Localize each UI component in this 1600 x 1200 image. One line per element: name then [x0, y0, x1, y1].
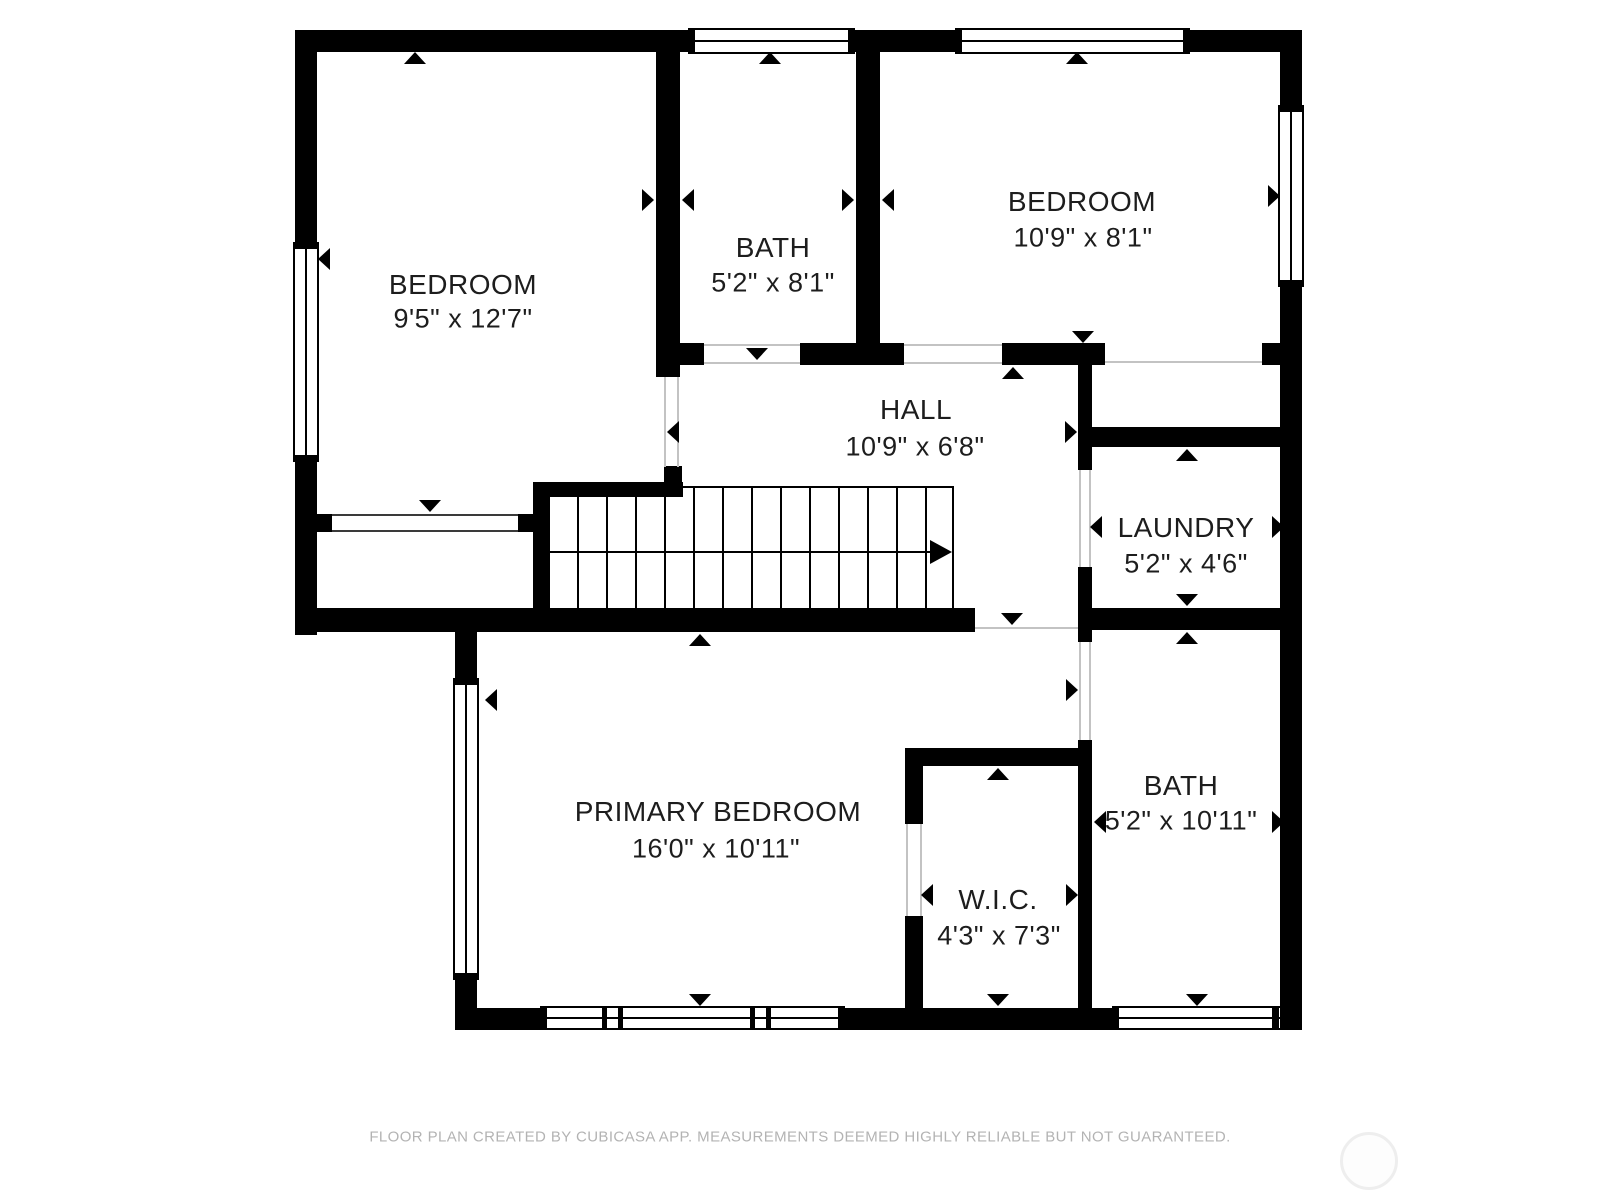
laundry-door-opening: [1079, 470, 1081, 567]
room-dims-bath2: 5'2" x 10'11": [1105, 806, 1258, 837]
window-post: [618, 1006, 623, 1030]
wall-bath-bottom-right: [800, 343, 904, 365]
bedroom2-door-opening: [904, 362, 1002, 364]
wall-laundry-top: [1090, 427, 1302, 447]
wall-laundry-left-upper: [1078, 343, 1092, 470]
room-dims-primary-bedroom: 16'0" x 10'11": [632, 834, 800, 865]
door-marker-icon: [419, 500, 441, 512]
door-marker-icon: [987, 994, 1009, 1006]
wall-wic-bath: [1078, 740, 1092, 1030]
room-label-bedroom2: BEDROOM: [1008, 186, 1156, 218]
primary-door-opening: [975, 627, 1078, 629]
wall-bath-bedroom2: [856, 30, 880, 365]
window-post: [293, 455, 319, 462]
wall-bedroom1-bath: [656, 30, 680, 377]
door-marker-icon: [1066, 884, 1078, 906]
wall-opening-stub-right: [518, 514, 534, 532]
door-marker-icon: [746, 348, 768, 360]
bedroom1-opening-line: [332, 530, 518, 532]
bath2-door-opening: [1089, 642, 1091, 740]
room-dims-bedroom1: 9'5" x 12'7": [393, 304, 532, 335]
wall-opening-stub-left: [317, 514, 332, 532]
window-glass-line: [688, 40, 855, 42]
window-glass-line: [540, 1017, 845, 1019]
door-marker-icon: [1066, 679, 1078, 701]
door-marker-icon: [1066, 52, 1088, 64]
bedroom2-door-opening: [904, 344, 1002, 346]
door-marker-icon: [1090, 516, 1102, 538]
window-post: [688, 28, 695, 54]
window-post: [838, 1006, 845, 1030]
room-label-laundry: LAUNDRY: [1118, 512, 1255, 544]
door-marker-icon: [485, 689, 497, 711]
window-post: [602, 1006, 607, 1030]
floor-plan: BEDROOM 9'5" x 12'7" BATH 5'2" x 8'1" BE…: [0, 0, 1600, 1200]
window: [540, 1006, 845, 1030]
door-marker-icon: [1001, 613, 1023, 625]
bath2-door-opening: [1079, 642, 1081, 740]
window-post: [848, 28, 855, 54]
window-glass-line: [1290, 105, 1292, 287]
door-marker-icon: [1186, 994, 1208, 1006]
window: [453, 678, 479, 980]
door-marker-icon: [842, 189, 854, 211]
room-dims-laundry: 5'2" x 4'6": [1124, 549, 1248, 580]
door-marker-icon: [667, 421, 679, 443]
door-marker-icon: [1002, 367, 1024, 379]
stairs-direction-arrow-icon: [930, 540, 952, 564]
door-marker-icon: [1065, 421, 1077, 443]
staircase: [548, 486, 954, 608]
footer-disclaimer: FLOOR PLAN CREATED BY CUBICASA APP. MEAS…: [369, 1129, 1230, 1146]
door-marker-icon: [1176, 632, 1198, 644]
room-dims-hall: 10'9" x 6'8": [845, 432, 984, 463]
wall-wic-left-lower: [905, 916, 923, 1030]
window-post: [1278, 105, 1304, 112]
door-marker-icon: [1272, 811, 1284, 833]
door-marker-icon: [759, 52, 781, 64]
window-post: [1272, 1006, 1279, 1030]
window-post: [1278, 280, 1304, 287]
wall-wic-top: [905, 748, 1090, 766]
wall-bedroom2-bottom-stub: [1262, 343, 1302, 365]
wall-mid-horizontal: [295, 608, 975, 632]
window: [688, 28, 855, 54]
window-glass-line: [465, 678, 467, 980]
door-marker-icon: [1176, 594, 1198, 606]
window-post: [293, 242, 319, 249]
door-marker-icon: [921, 884, 933, 906]
room-dims-bedroom2: 10'9" x 8'1": [1013, 223, 1152, 254]
hall-nook-boundary: [1105, 361, 1262, 363]
door-marker-icon: [1072, 331, 1094, 343]
hall-bedroom1-boundary: [664, 377, 666, 467]
wall-laundry-left-lower: [1078, 567, 1092, 642]
compass-circle: [1340, 1132, 1398, 1190]
window-post: [766, 1006, 771, 1030]
bedroom1-opening-line: [332, 514, 518, 516]
door-marker-icon: [1176, 449, 1198, 461]
door-marker-icon: [642, 189, 654, 211]
door-marker-icon: [404, 52, 426, 64]
staircase-rail-line: [548, 551, 932, 553]
door-marker-icon: [882, 189, 894, 211]
door-marker-icon: [682, 189, 694, 211]
wall-laundry-bottom: [1090, 608, 1302, 630]
window-glass-line: [955, 40, 1190, 42]
room-label-bath2: BATH: [1144, 770, 1219, 802]
wic-door-opening: [906, 824, 908, 916]
window: [1112, 1006, 1280, 1030]
window-post: [540, 1006, 547, 1030]
room-label-wic: W.I.C.: [958, 884, 1037, 916]
room-label-hall: HALL: [880, 394, 952, 426]
window-post: [453, 678, 479, 685]
door-marker-icon: [1272, 516, 1284, 538]
window-post: [1183, 28, 1190, 54]
room-label-primary-bedroom: PRIMARY BEDROOM: [575, 796, 862, 828]
room-label-bedroom1: BEDROOM: [389, 269, 537, 301]
door-marker-icon: [1268, 185, 1280, 207]
room-dims-wic: 4'3" x 7'3": [937, 921, 1061, 952]
window: [1278, 105, 1304, 287]
wall-wic-left-upper: [905, 748, 923, 824]
room-label-bath1: BATH: [736, 232, 811, 264]
room-dims-bath1: 5'2" x 8'1": [711, 268, 835, 299]
door-marker-icon: [689, 634, 711, 646]
window: [293, 242, 319, 462]
window-post: [955, 28, 962, 54]
window-post: [453, 973, 479, 980]
window-glass-line: [1112, 1017, 1280, 1019]
door-marker-icon: [987, 768, 1009, 780]
window-post: [750, 1006, 755, 1030]
wall-bath-bottom-left: [656, 343, 704, 365]
door-marker-icon: [689, 994, 711, 1006]
window: [955, 28, 1190, 54]
window-post: [1112, 1006, 1119, 1030]
bath1-door-opening: [704, 362, 800, 364]
wall-stairs-left: [533, 482, 548, 608]
window-glass-line: [305, 242, 307, 462]
bath1-door-opening: [704, 344, 800, 346]
door-marker-icon: [318, 248, 330, 270]
